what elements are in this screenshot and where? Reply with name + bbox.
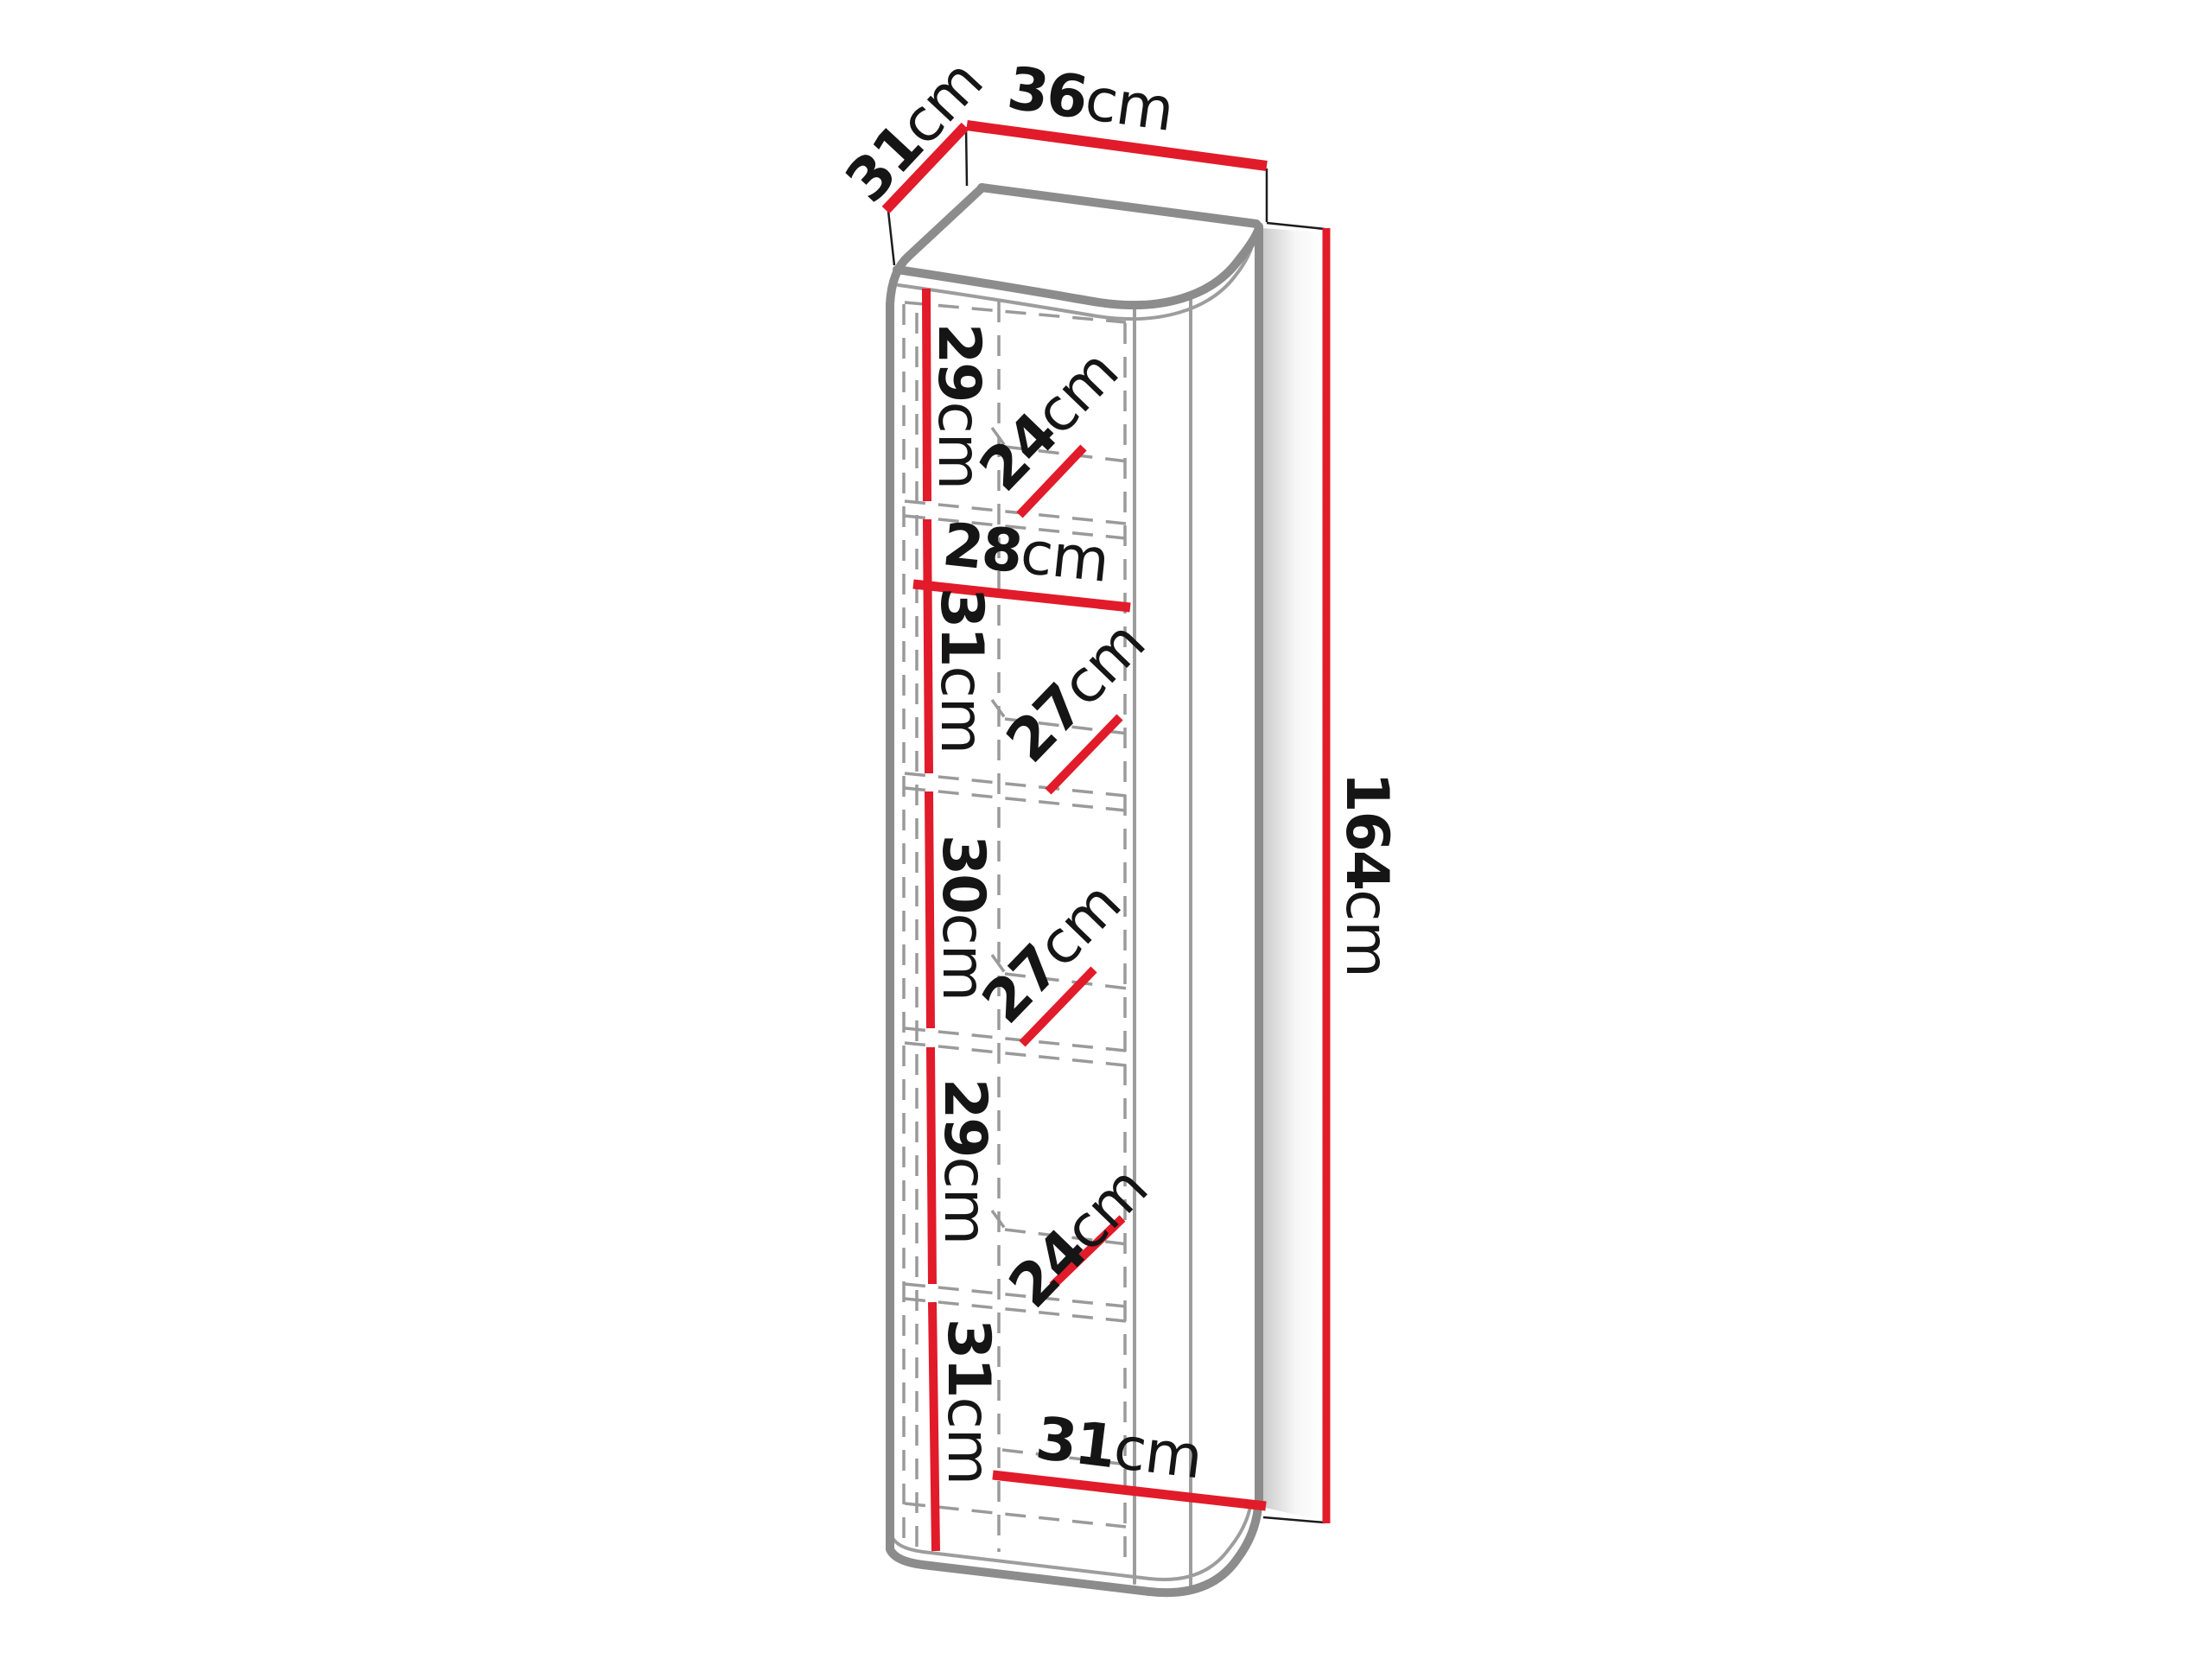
dim-section2-height-label: 31cm [928, 588, 996, 753]
extension-line [888, 211, 894, 265]
dim-inner-width-top-label: 28cm [939, 511, 1111, 596]
cabinet-top-left-edge [908, 188, 982, 257]
cabinet-dimension-diagram: 31cm 36cm 164cm 29cm 24cm 28cm 31cm 27cm… [0, 0, 2212, 1659]
extension-line [1267, 223, 1325, 229]
extension-line [966, 127, 967, 186]
dim-section5-height-label: 31cm [935, 1319, 1003, 1484]
shelf-front-dashed-line [905, 773, 1126, 796]
cabinet-top-back-edge [982, 188, 1256, 224]
cabinet-side-panel-shading [1262, 228, 1323, 1521]
dim-height-right-label: 164cm [1333, 772, 1402, 977]
dim-depth-top-label: 31cm [833, 48, 996, 216]
diagram-canvas: 31cm 36cm 164cm 29cm 24cm 28cm 31cm 27cm… [0, 0, 2212, 1659]
dim-section4-height-label: 29cm [931, 1078, 1000, 1244]
